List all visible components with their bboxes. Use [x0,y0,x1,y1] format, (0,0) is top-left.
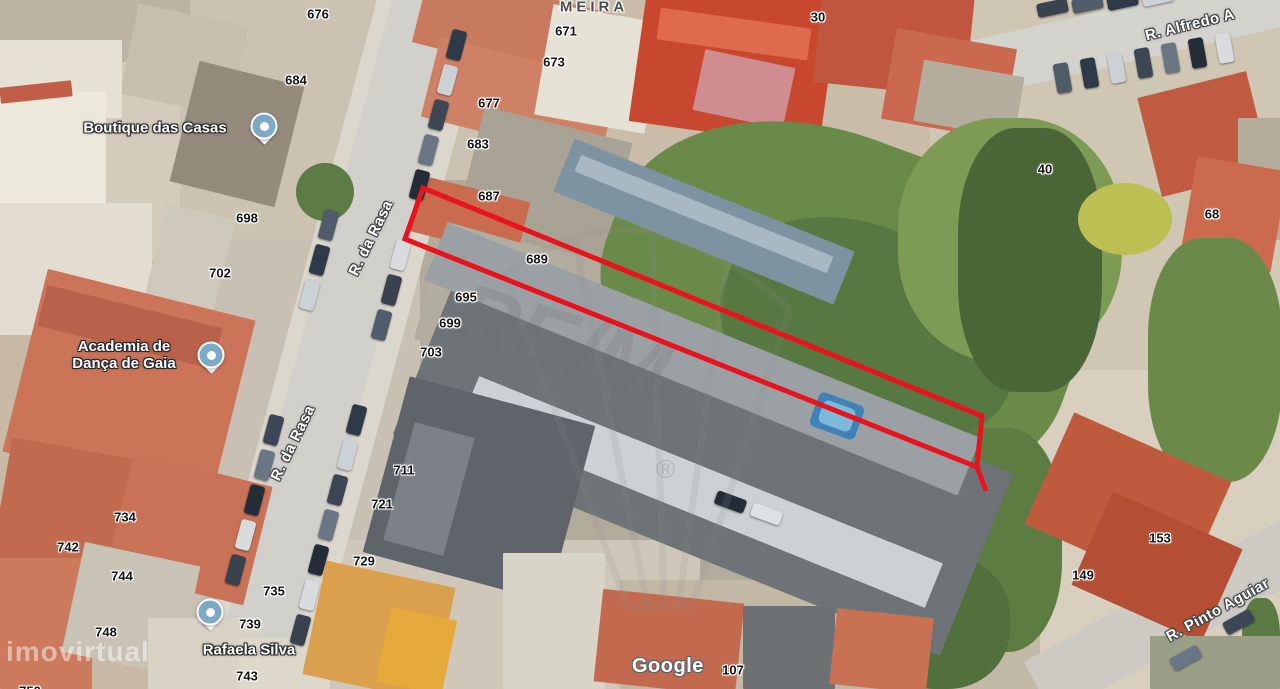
house-number-729: 729 [353,554,375,569]
poi-pin-boutique-das-casas[interactable] [251,113,278,140]
street-label-r-pinto-aguiar: R. Pinto Aguiar [1163,575,1272,646]
poi-pin-rafaela-silva[interactable] [197,599,224,626]
house-number-711: 711 [394,463,415,478]
house-number-673: 673 [543,55,565,70]
satellite-map-viewport[interactable]: RE/M ® MEIRA R. da RasaR. da RasaR. Alfr… [0,0,1280,689]
poi-pin-academia-de-danca-de-gaia[interactable] [198,342,225,369]
house-number-699: 699 [439,316,461,331]
poi-label-rafaela-silva[interactable]: Rafaela Silva [203,643,296,660]
house-number-687: 687 [478,189,500,204]
street-label-r-da-rasa: R. da Rasa [345,198,396,279]
house-number-744: 744 [111,569,133,584]
house-number-689: 689 [526,252,548,267]
house-number-743: 743 [236,669,258,684]
house-number-684: 684 [285,73,307,88]
house-number-750: 750 [19,684,41,689]
house-number-40: 40 [1038,162,1052,177]
pin-circle [198,342,225,369]
map-labels-layer: MEIRA R. da RasaR. da RasaR. Alfredo AR.… [0,0,1280,689]
google-attribution-logo[interactable]: Google [632,655,704,678]
poi-label-academia-de-danca-de-gaia[interactable]: Academia deDança de Gaia [72,339,175,373]
street-label-r-alfredo-a: R. Alfredo A [1144,6,1237,45]
house-number-30: 30 [811,10,825,25]
house-number-153: 153 [1149,531,1171,546]
house-number-734: 734 [114,510,136,525]
house-number-703: 703 [420,345,442,360]
house-number-698: 698 [236,211,258,226]
pin-center-dot [206,608,215,617]
house-number-68: 68 [1205,207,1219,222]
house-number-742: 742 [57,540,79,555]
house-number-676: 676 [307,7,329,22]
pin-center-dot [260,122,269,131]
locality-label: MEIRA [560,0,628,16]
house-number-671: 671 [555,24,577,39]
house-number-735: 735 [263,584,285,599]
house-number-702: 702 [209,266,231,281]
street-label-r-da-rasa: R. da Rasa [267,403,318,484]
watermark-imovirtual: imovirtual [6,636,150,668]
house-number-149: 149 [1072,568,1094,583]
house-number-721: 721 [371,497,393,512]
house-number-677: 677 [478,96,500,111]
house-number-739: 739 [239,617,261,632]
house-number-695: 695 [455,290,477,305]
poi-label-boutique-das-casas[interactable]: Boutique das Casas [83,121,226,138]
pin-circle [197,599,224,626]
house-number-683: 683 [467,137,489,152]
pin-circle [251,113,278,140]
pin-center-dot [207,351,216,360]
house-number-107: 107 [722,663,744,678]
